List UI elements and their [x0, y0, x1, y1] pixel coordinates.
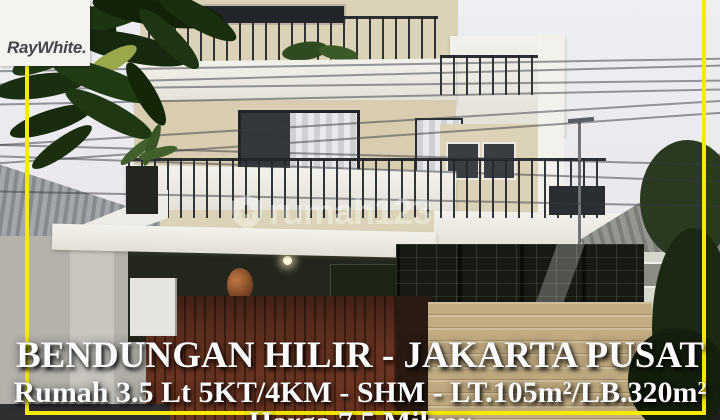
listing-photo: rumah123 RayWhite. BENDUNGAN HILIR - JAK… — [0, 0, 720, 420]
caption-details: Rumah 3.5 Lt 5KT/4KM - SHM - LT.105m²/LB… — [0, 377, 720, 409]
raywhite-logo-text: RayWhite. — [0, 38, 86, 66]
caption-price: Harga 7.5 Milyar — [0, 407, 720, 420]
raywhite-logo: RayWhite. — [0, 0, 90, 66]
caption-location: BENDUNGAN HILIR - JAKARTA PUSAT — [0, 335, 720, 376]
